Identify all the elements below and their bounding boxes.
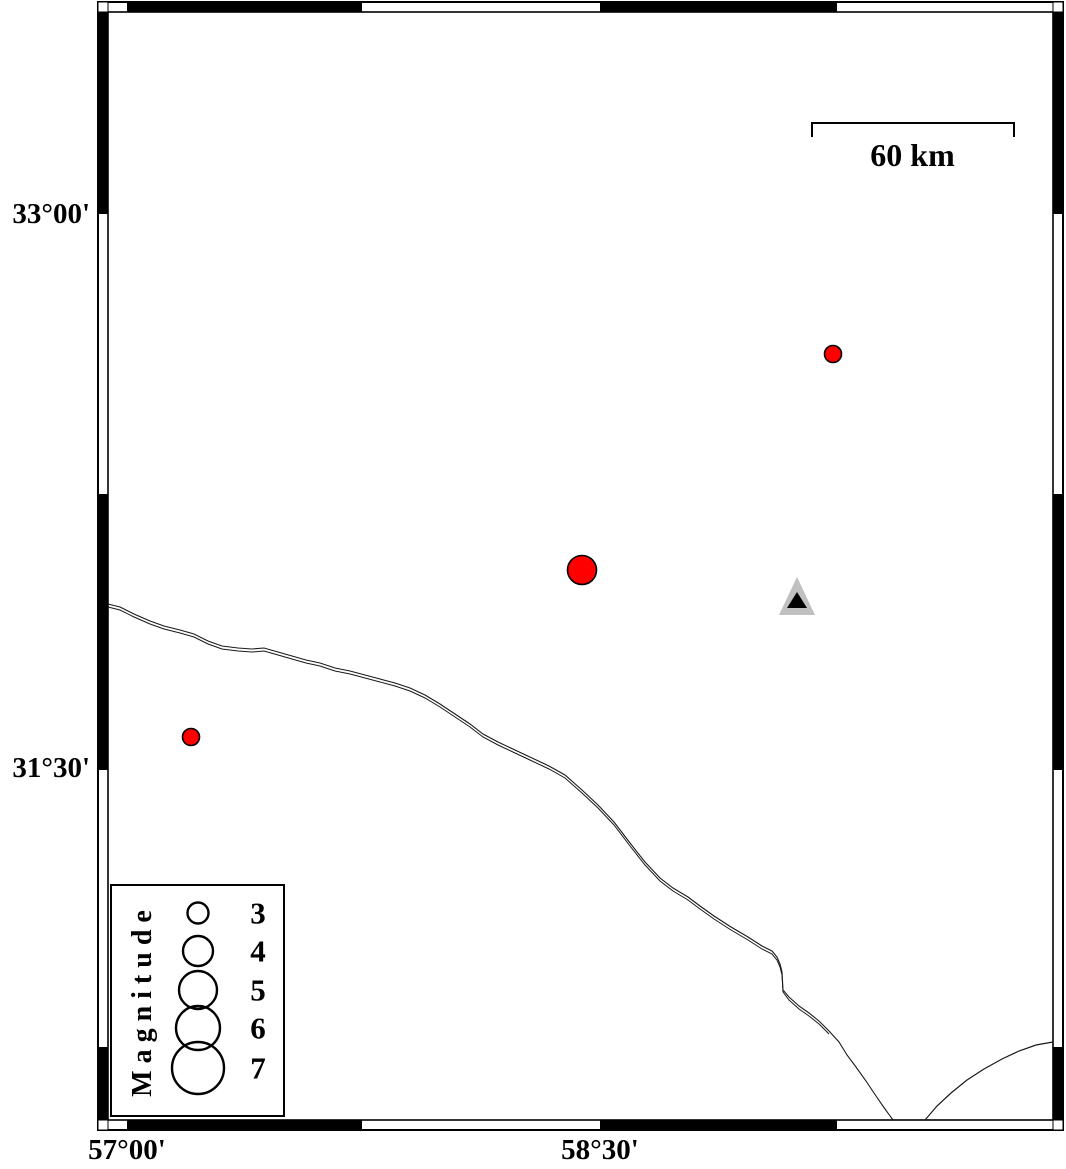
boundary-line-twin: [108, 607, 829, 1034]
legend-value-6: 6: [250, 1011, 266, 1046]
boundary-line-main: [108, 604, 893, 1120]
frame-corner: [98, 1120, 108, 1130]
legend-circles-layer: 34567: [172, 896, 266, 1095]
map-graphics: 34567: [0, 0, 1066, 1169]
y-axis-label-bottom: 31°30': [0, 754, 90, 783]
map-canvas: 34567 33°00' 31°30' 57°00' 58°30' 60 km …: [0, 0, 1066, 1169]
station-marker-layer: [779, 577, 815, 615]
legend-value-5: 5: [250, 973, 266, 1008]
legend-value-3: 3: [250, 896, 266, 931]
earthquake-marker: [183, 729, 200, 746]
legend-circle-6: [176, 1006, 220, 1050]
earthquake-marker: [825, 346, 842, 363]
y-axis-label-top: 33°00': [0, 200, 90, 229]
legend-circle-5: [179, 971, 217, 1009]
frame-segment: [127, 1120, 362, 1130]
boundary-branch-line: [925, 1042, 1053, 1120]
frame-segment: [600, 1120, 837, 1130]
legend-value-4: 4: [250, 934, 266, 969]
frame-segment: [1053, 1047, 1063, 1120]
frame-corner: [1053, 1120, 1063, 1130]
legend-title: Magnitude: [129, 903, 157, 1097]
scale-bar: [812, 123, 1014, 137]
frame-segment: [600, 2, 837, 12]
legend-circle-4: [183, 936, 213, 966]
frame-segment: [127, 2, 362, 12]
earthquake-markers-layer: [183, 346, 842, 746]
frame-segment: [98, 1047, 108, 1120]
x-axis-label-center: 58°30': [540, 1136, 660, 1165]
legend-circle-3: [188, 903, 209, 924]
frame-segment: [98, 494, 108, 770]
frame-segment: [1053, 494, 1063, 770]
x-axis-label-left: 57°00': [67, 1136, 187, 1165]
legend-value-7: 7: [250, 1051, 266, 1086]
frame-segment: [98, 12, 108, 214]
frame-segment: [1053, 12, 1063, 214]
frame-corner: [98, 2, 108, 12]
scale-bar-label: 60 km: [842, 139, 983, 171]
frame-corner: [1053, 2, 1063, 12]
earthquake-marker: [568, 556, 597, 585]
